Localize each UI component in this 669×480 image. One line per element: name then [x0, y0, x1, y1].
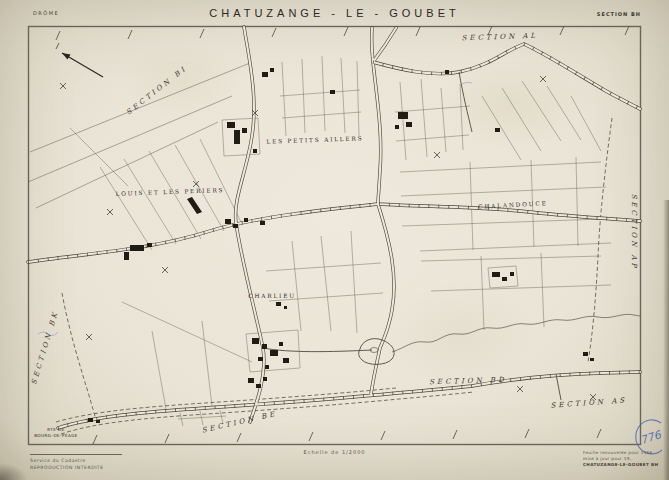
roads-casing: [28, 27, 640, 428]
section-label-as: SECTION AS: [550, 396, 627, 409]
cadastral-map-sheet: DRÔME CHATUZANGE - LE - GOUBET SECTION B…: [0, 0, 669, 480]
buildings: [88, 68, 594, 423]
section-label-ap: SECTION AP: [630, 194, 638, 271]
north-arrow-icon: [56, 43, 103, 77]
footer-cadastre-service: Service du Cadastre: [30, 457, 122, 464]
footer-right-block: Feuille renouvelée pour 1966 mise à jour…: [583, 450, 669, 468]
roads-infill: [28, 27, 640, 428]
section-label-bi: SECTION BI: [125, 64, 189, 116]
footer-reproduction-notice: REPRODUCTION INTERDITE: [30, 464, 122, 471]
lieu-dit-louis-et-les-periers: LOUIS ET LES PERIERS: [115, 187, 224, 197]
section-label-bd: SECTION BD: [429, 376, 507, 387]
lieu-dit-les-petits-aillers: LES PETITS AILLERS: [266, 135, 363, 144]
section-label-bk: SECTION BK: [30, 309, 60, 385]
road-tie-marks: [28, 44, 640, 428]
road-sign-line2: BOURG-DE-PÉAGE: [34, 433, 78, 438]
lieu-dit-charlieu: CHARLIEU: [248, 293, 296, 299]
map-canvas: 776 SECTION BI SECTION AL SECTION BK SEC…: [0, 0, 669, 480]
minor-lanes: [263, 72, 561, 400]
parcel-lines: [70, 56, 611, 426]
handwritten-number: 776: [639, 428, 664, 447]
lieu-dit-chalandouce: CHALANDOUCE: [478, 200, 548, 210]
footer-left-block: Service du Cadastre REPRODUCTION INTERDI…: [30, 454, 122, 471]
footer-divider: [30, 454, 122, 455]
road-sign-line1: RTE DE: [47, 427, 64, 432]
stream-line: [392, 314, 640, 352]
section-label-al: SECTION AL: [462, 32, 539, 43]
footer-sheet-id: CHATUZANGE-LE-GOUBET BH: [583, 462, 669, 468]
